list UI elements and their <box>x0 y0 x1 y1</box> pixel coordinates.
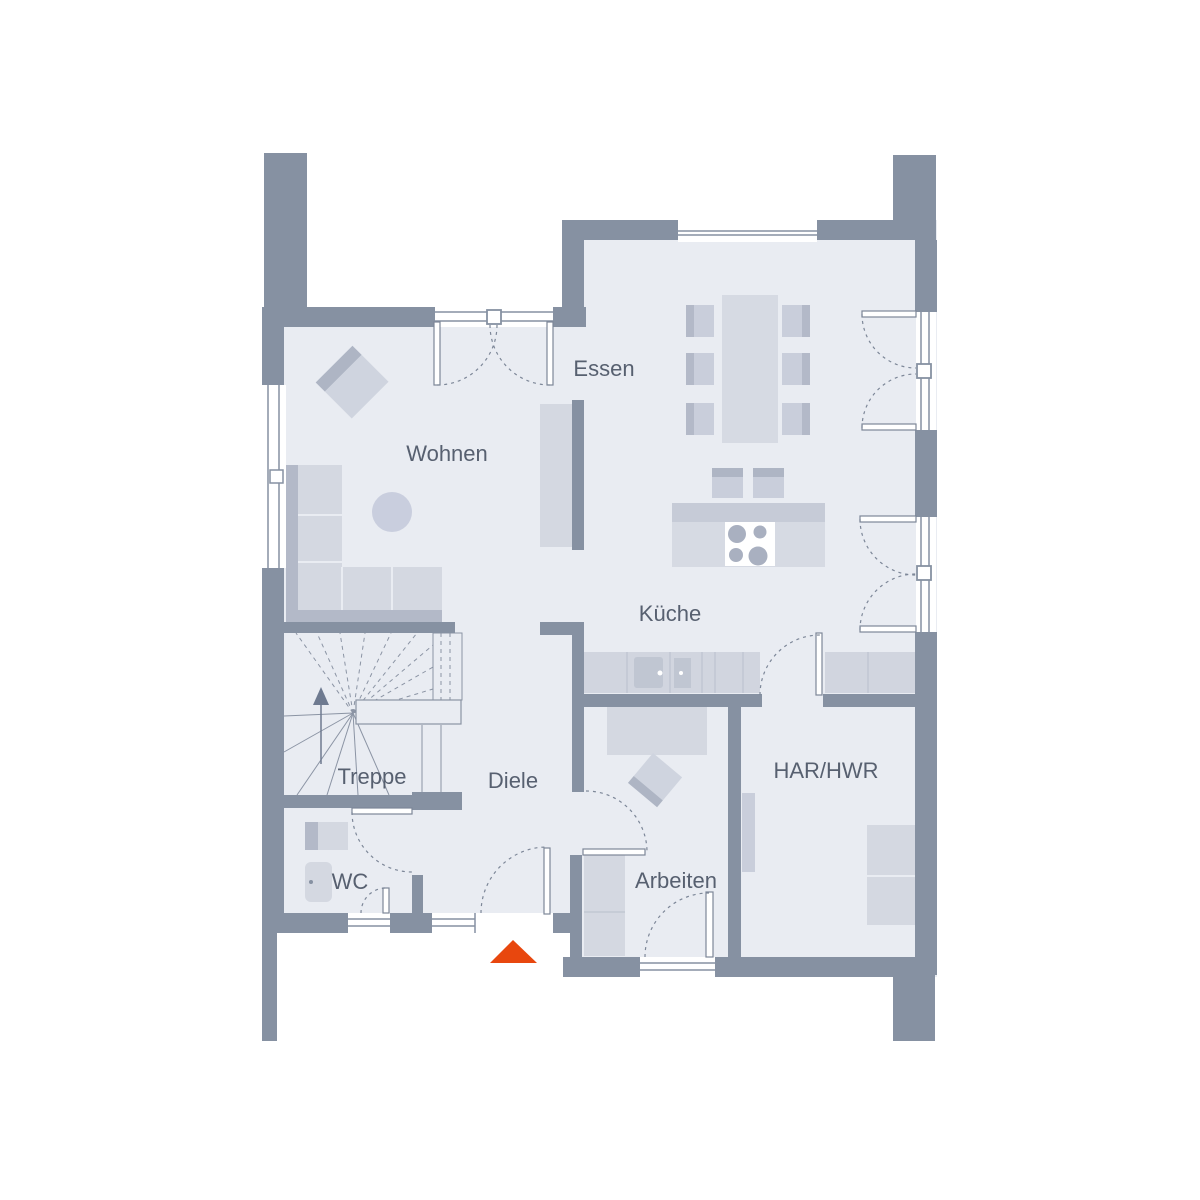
bar-stool-seat <box>712 477 743 498</box>
floor-east-upper <box>562 220 937 707</box>
dining-table <box>722 295 778 443</box>
dryer <box>867 877 915 925</box>
wall-stair-bottom-a <box>283 795 412 808</box>
room-label-treppe: Treppe <box>338 764 407 789</box>
wc-vanity-cabinet <box>305 822 318 850</box>
har-counter <box>825 652 915 693</box>
dining-chair-seat <box>694 403 714 435</box>
wall-bottom-west-c <box>553 913 572 933</box>
door-leaf <box>860 626 916 632</box>
wall-arbeiten-har <box>728 705 741 957</box>
entrance-door <box>432 913 553 933</box>
dining-chair-back <box>802 403 810 435</box>
kitchen-counter <box>584 652 760 693</box>
kitchen-island-top <box>672 503 825 522</box>
floor-plan-page: WohnenEssenKücheTreppeDieleWCArbeitenHAR… <box>0 0 1200 1200</box>
room-label-kueche: Küche <box>639 601 701 626</box>
wall-wc-door-lower <box>412 875 423 913</box>
hob-burner <box>754 526 767 539</box>
washing-machine <box>867 825 915 875</box>
dining-chair-seat <box>782 403 802 435</box>
room-label-wc: WC <box>332 869 369 894</box>
wall-bottom-west-a <box>262 913 348 933</box>
sofa-seats-horizontal <box>298 567 442 610</box>
door-marker <box>487 310 501 324</box>
door-leaf <box>862 424 916 430</box>
dining-chair-back <box>686 353 694 385</box>
room-label-wohnen: Wohnen <box>406 441 488 466</box>
wall-bottom-south-a <box>563 957 640 977</box>
wall-bottom-connector <box>570 855 582 957</box>
dining-chair-seat <box>782 353 802 385</box>
dining-chair-seat <box>694 305 714 337</box>
door-leaf <box>816 633 822 695</box>
door-leaf <box>860 516 916 522</box>
wall-top-connector <box>562 220 584 327</box>
door-leaf <box>544 848 550 914</box>
dining-chair-back <box>686 305 694 337</box>
dining-chair-seat <box>694 353 714 385</box>
wall-essen-top-left <box>584 220 678 240</box>
wall-stair-top <box>283 622 455 633</box>
sink-faucet-dot <box>658 671 663 676</box>
window-leaf <box>706 892 713 957</box>
hob-burner <box>729 548 743 562</box>
wall-left-lower-stub <box>262 933 277 1041</box>
window-leaf <box>383 888 389 913</box>
stair-landing <box>356 700 461 724</box>
wall-kueche-south-b <box>823 694 915 707</box>
bar-stool-seat <box>753 477 784 498</box>
coffee-table <box>372 492 412 532</box>
room-label-arbeiten: Arbeiten <box>635 868 717 893</box>
door-marker <box>917 364 931 378</box>
bar-stool-back <box>712 468 743 477</box>
dining-chair-back <box>802 305 810 337</box>
wall-right-upper-stub <box>893 155 936 240</box>
window-arbeiten <box>640 957 715 977</box>
door-leaf <box>862 311 916 317</box>
window-left-marker <box>270 470 283 483</box>
wall-right-1 <box>915 240 937 312</box>
dishwasher-dot <box>679 671 683 675</box>
wc-toilet-dot <box>309 880 313 884</box>
room-label-har_hwr: HAR/HWR <box>773 758 878 783</box>
sofa-backrest-bottom <box>286 610 442 622</box>
door-leaf <box>547 322 553 385</box>
wall-right-lower-stub <box>893 975 935 1041</box>
wall-left-upper-stub <box>264 153 307 308</box>
wall-left-bottom <box>262 568 284 933</box>
room-label-diele: Diele <box>488 768 538 793</box>
door-leaf <box>352 808 412 814</box>
entrance-marker-triangle <box>490 940 537 963</box>
desk <box>584 855 625 956</box>
sofa-backrest-left <box>286 465 298 622</box>
hob-burner <box>728 525 746 543</box>
har-shelf <box>742 793 755 872</box>
wc-washbasin <box>318 822 348 850</box>
wall-bottom-south-b <box>715 957 935 977</box>
dining-chair-seat <box>782 305 802 337</box>
floor-plan-svg: WohnenEssenKücheTreppeDieleWCArbeitenHAR… <box>0 0 1200 1200</box>
room-label-essen: Essen <box>573 356 634 381</box>
wall-sideboard-partition <box>572 400 584 550</box>
hob-burner <box>749 547 768 566</box>
wall-bottom-west-b <box>390 913 432 933</box>
dining-chair-back <box>686 403 694 435</box>
door-leaf <box>434 322 440 385</box>
wall-wohnen-top <box>264 307 435 327</box>
wall-right-3 <box>915 632 937 975</box>
bar-stool-back <box>753 468 784 477</box>
door-marker <box>917 566 931 580</box>
wall-right-2 <box>915 430 937 517</box>
tv-sideboard <box>540 404 572 547</box>
wall-stair-bottom-b <box>412 792 462 810</box>
door-leaf <box>583 849 645 855</box>
guest-bed <box>607 705 707 755</box>
window-wc <box>348 913 390 933</box>
dining-chair-back <box>802 353 810 385</box>
